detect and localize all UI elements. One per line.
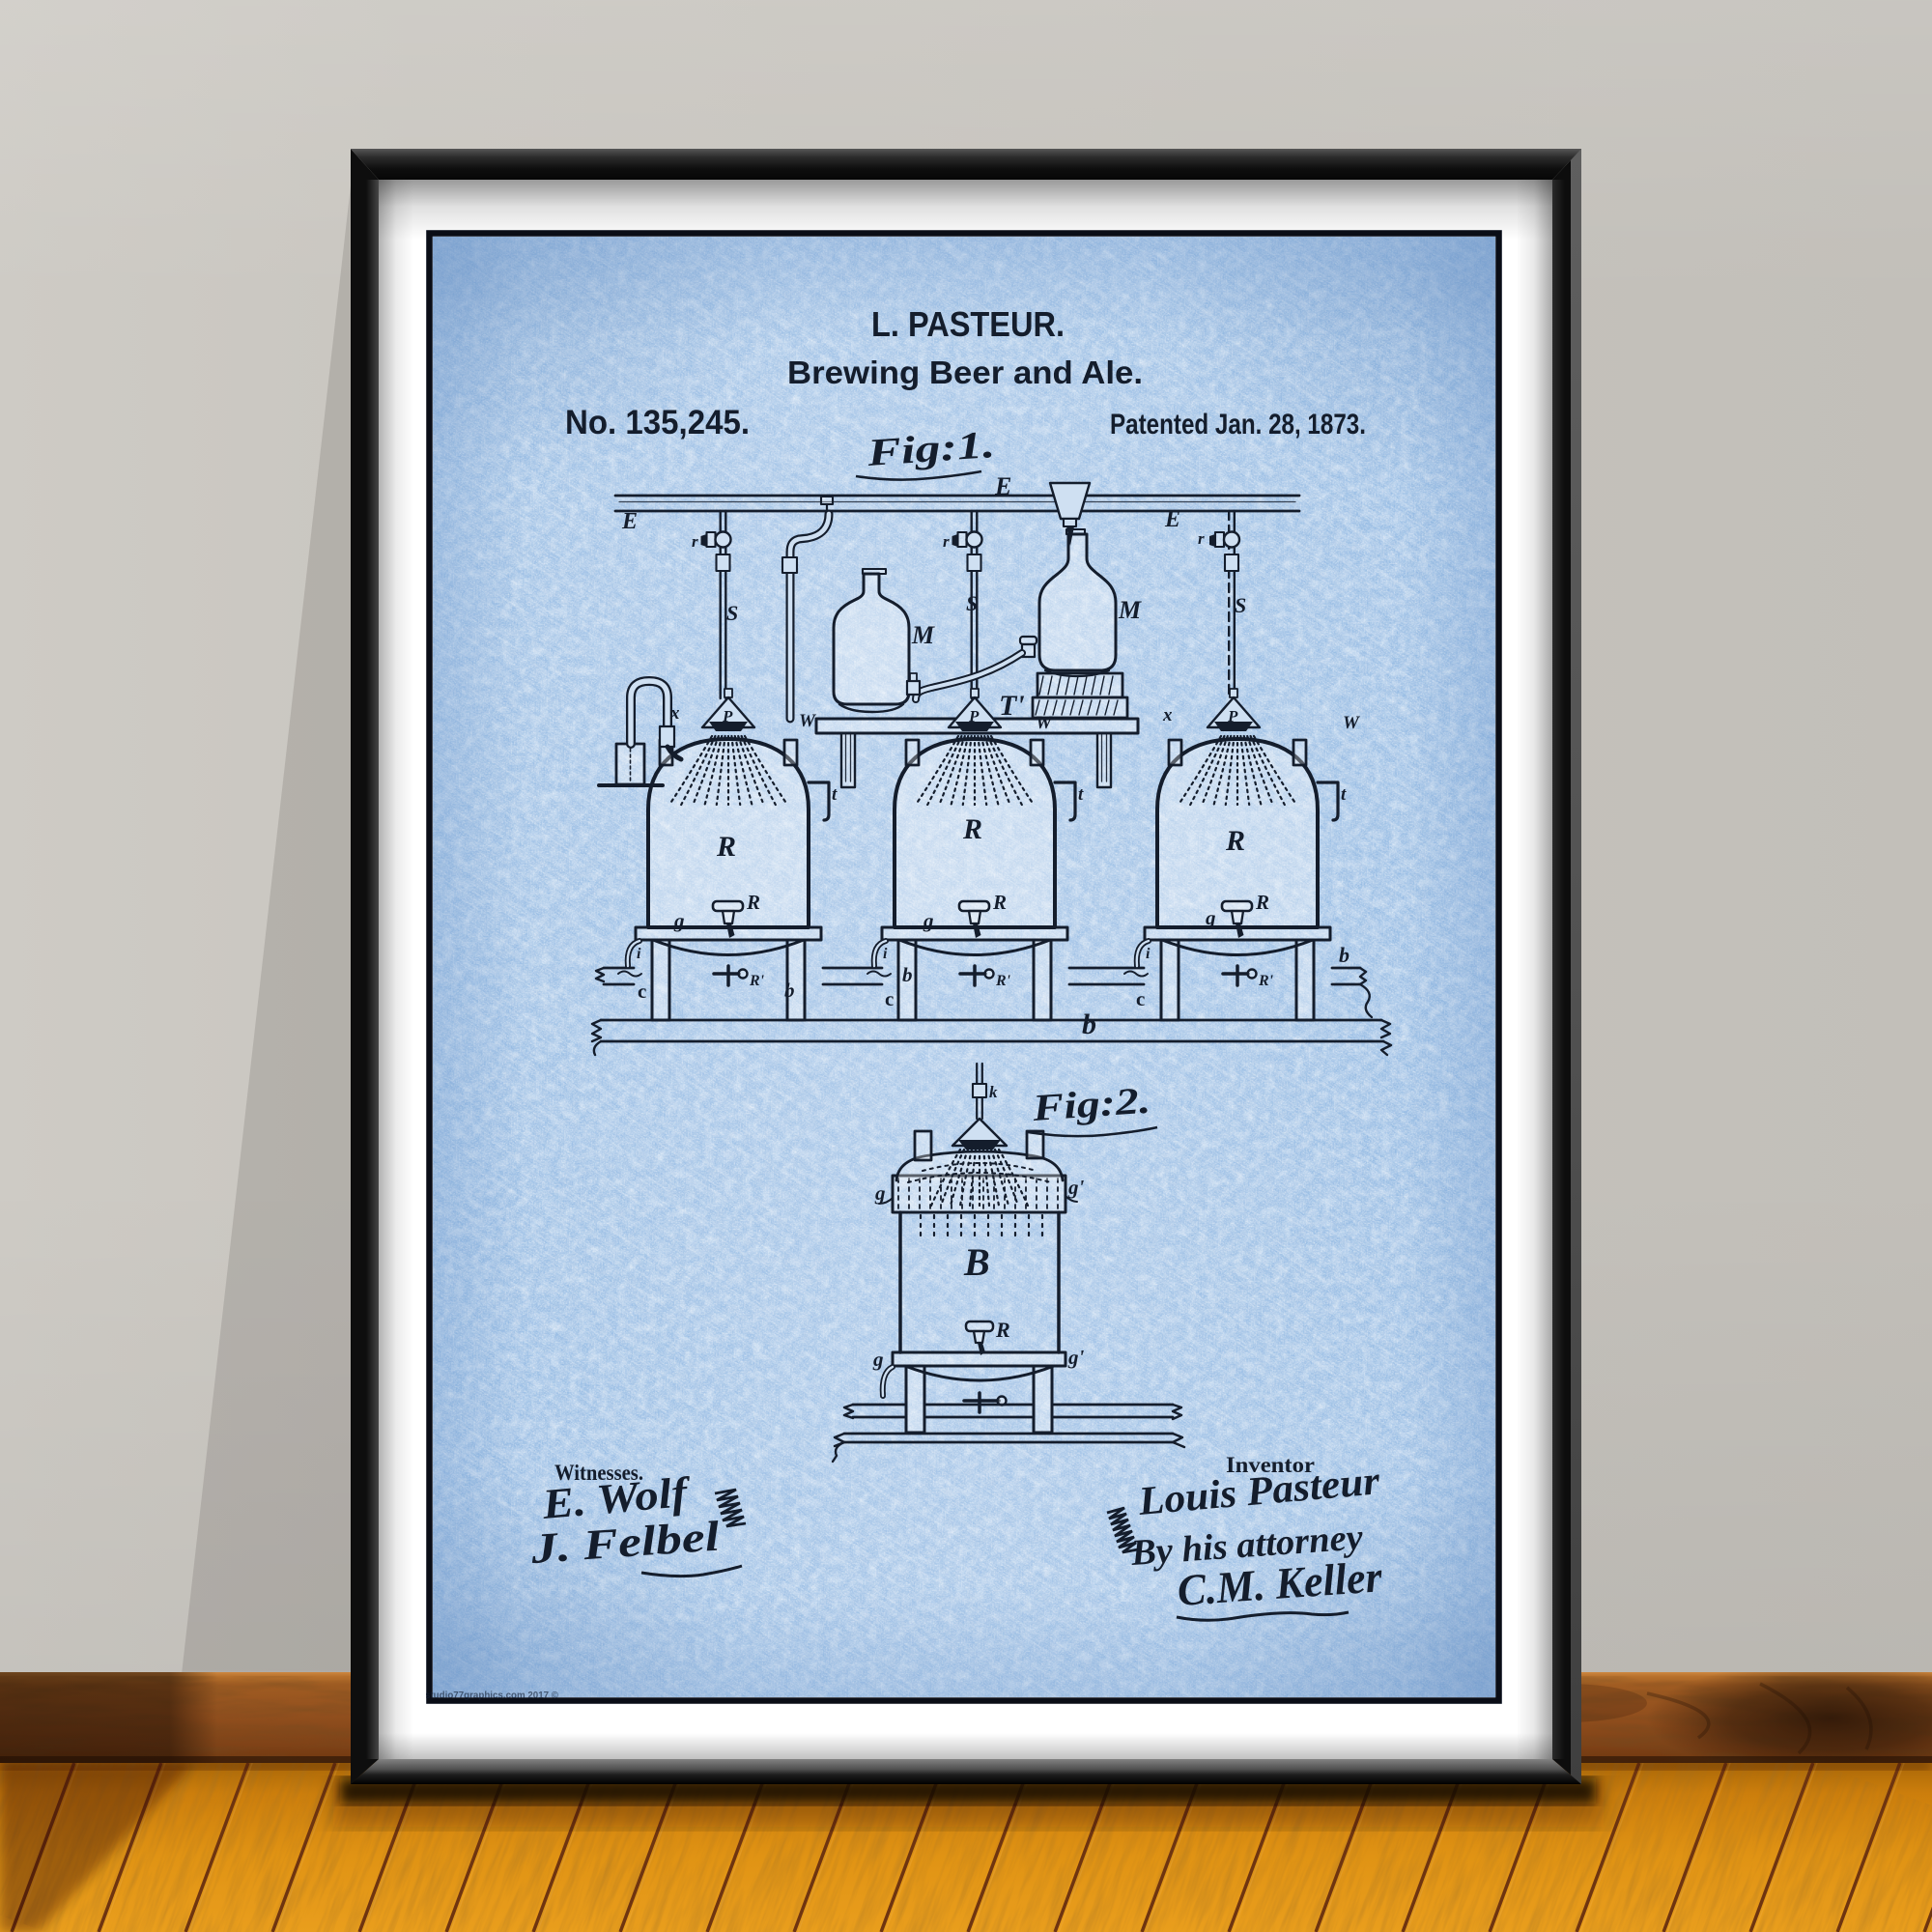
svg-text:Fig:2.: Fig:2. [1030,1080,1151,1129]
svg-text:x: x [1162,705,1173,725]
svg-text:P: P [1227,707,1238,725]
svg-text:r: r [943,532,950,551]
svg-text:No. 135,245.: No. 135,245. [565,404,750,441]
svg-text:c: c [638,980,646,1003]
svg-text:studio77graphics.com 2017 ©: studio77graphics.com 2017 © [426,1690,559,1701]
svg-text:g: g [923,909,934,932]
svg-text:S: S [726,601,738,625]
svg-text:t: t [1078,784,1084,805]
svg-text:M: M [911,621,935,649]
svg-text:g: g [1205,906,1216,929]
svg-text:r: r [692,532,698,551]
svg-text:T': T' [999,690,1025,722]
svg-text:g: g [673,909,685,932]
svg-text:R: R [716,831,736,863]
svg-text:b: b [784,979,795,1002]
svg-text:W: W [1036,713,1053,733]
svg-text:Brewing Beer and Ale.: Brewing Beer and Ale. [787,355,1143,390]
svg-text:P: P [968,707,980,725]
svg-text:R: R [1225,825,1245,857]
svg-text:t: t [1341,784,1347,805]
svg-text:r: r [1198,529,1205,548]
svg-text:R: R [1255,891,1269,914]
svg-text:b: b [902,963,913,986]
svg-text:L. PASTEUR.: L. PASTEUR. [871,304,1065,344]
svg-text:R: R [962,813,982,845]
svg-text:i: i [1146,946,1151,962]
svg-text:c: c [1136,987,1145,1010]
svg-text:W: W [799,711,816,731]
svg-text:i: i [883,946,888,962]
svg-text:Fig:1.: Fig:1. [865,422,996,474]
svg-text:W: W [1343,713,1360,733]
svg-text:Patented Jan. 28, 1873.: Patented Jan. 28, 1873. [1110,409,1366,440]
svg-text:E: E [1164,507,1180,532]
svg-text:S: S [1235,593,1246,617]
svg-text:t: t [832,784,838,805]
svg-text:g': g' [1067,1176,1085,1199]
svg-text:b: b [1339,943,1350,967]
svg-text:R': R' [1258,973,1274,989]
svg-text:c: c [885,987,894,1010]
svg-text:R: R [995,1318,1010,1342]
svg-text:B: B [963,1240,990,1284]
svg-text:g': g' [1067,1346,1085,1369]
svg-text:R': R' [749,973,765,989]
svg-text:S: S [966,591,978,615]
svg-text:g: g [874,1181,886,1205]
svg-text:R: R [746,891,760,914]
svg-text:R': R' [995,973,1011,989]
svg-text:k: k [989,1083,998,1101]
svg-text:b: b [1082,1009,1096,1040]
svg-text:E: E [621,509,638,534]
svg-text:P: P [722,707,733,725]
svg-text:g: g [872,1348,884,1371]
svg-text:E: E [994,472,1011,500]
svg-text:M: M [1118,596,1142,624]
svg-text:x: x [669,703,680,724]
svg-text:i: i [637,946,641,962]
svg-text:R: R [992,891,1007,914]
